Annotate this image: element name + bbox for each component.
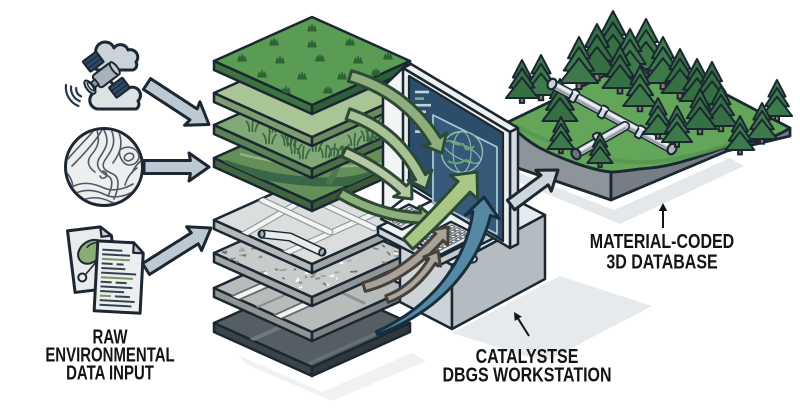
- svg-text:DBGS WORKSTATION: DBGS WORKSTATION: [443, 363, 612, 386]
- svg-text:3D DATABASE: 3D DATABASE: [606, 250, 717, 273]
- svg-text:DATA INPUT: DATA INPUT: [66, 361, 154, 384]
